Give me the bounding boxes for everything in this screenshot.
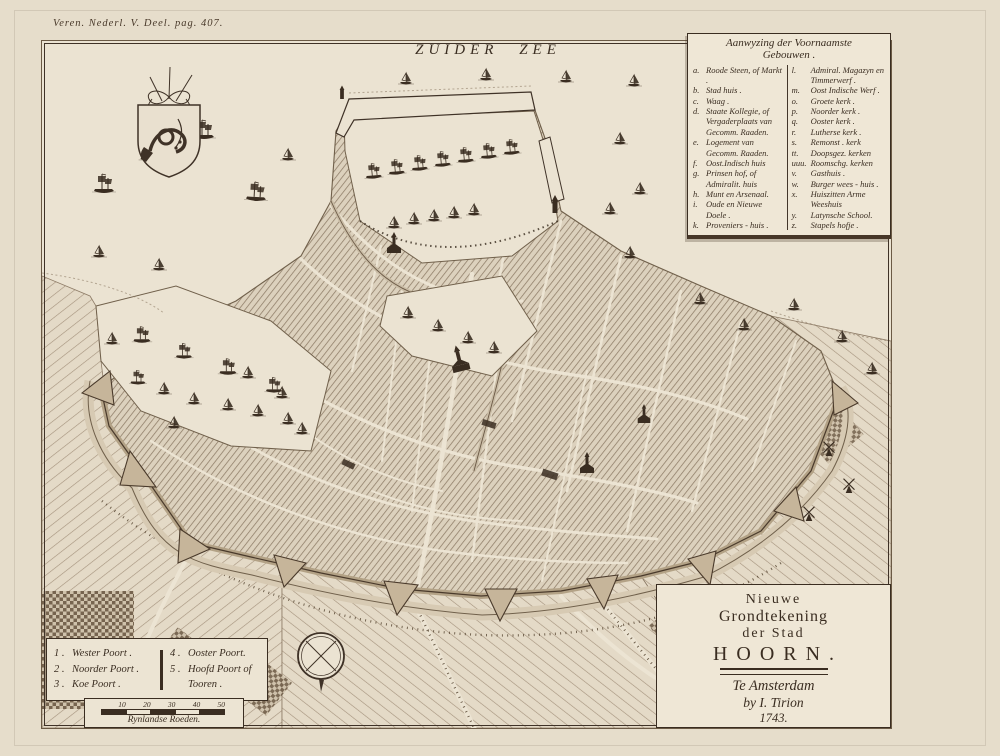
engraved-map-page: Veren. Nederl. V. Deel. pag. 407.: [0, 0, 1000, 756]
gate-entry: 4 .Ooster Poort.: [170, 646, 263, 662]
imprint-year: 1743.: [657, 711, 890, 726]
gate-entry: 2 .Noorder Poort .: [54, 662, 156, 678]
legend-entry: h.Munt en Arsenaal.: [693, 189, 783, 199]
legend-entry: q.Ooster kerk .: [792, 116, 886, 126]
legend-left-column: a.Roode Steen, of Markt . b.Stad huis . …: [688, 65, 787, 231]
scale-bar: 10 20 30 40 50 Rynlandse Roeden.: [84, 698, 244, 728]
legend-right-column: l.Admiral. Magazyn en Timmerwerf . m.Oos…: [787, 65, 890, 231]
legend-entry: c.Waag .: [693, 96, 783, 106]
legend-entry: g.Prinsen hof, of Admiralit. huis: [693, 168, 783, 189]
legend-entry: r.Lutherse kerk .: [792, 127, 886, 137]
gates-legend: 1 .Wester Poort . 2 .Noorder Poort . 3 .…: [46, 638, 268, 701]
gates-right-column: 4 .Ooster Poort. 5 .Hoofd Poort of Toore…: [163, 644, 267, 695]
legend-entry: p.Noorder kerk .: [792, 106, 886, 116]
legend-entry: i.Oude en Nieuwe Doele .: [693, 199, 783, 220]
scale-rule: [101, 709, 225, 715]
legend-entry: s.Remonst . kerk: [792, 137, 886, 147]
gate-entry: 3 .Koe Poort .: [54, 677, 156, 693]
legend-entry: y.Latynsche School.: [792, 210, 886, 220]
legend-entry: b.Stad huis .: [693, 85, 783, 95]
legend-entry: k.Proveniers - huis .: [693, 220, 783, 230]
sea-label: ZUIDER ZEE: [382, 42, 594, 59]
legend-entry: w.Burger wees - huis .: [792, 179, 886, 189]
legend-entry: x.Huiszitten Arme Weeshuis: [792, 189, 886, 210]
legend-entry: d.Staate Kollegie, of Vergaderplaats van…: [693, 106, 783, 137]
imprint-place: Te Amsterdam: [657, 678, 890, 695]
legend-entry: m.Oost Indische Werf .: [792, 85, 886, 95]
legend-entry: z.Stapels hofje .: [792, 220, 886, 230]
legend-entry: v.Gasthuis .: [792, 168, 886, 178]
scale-label: Rynlandse Roeden.: [85, 716, 243, 726]
title-line2: Grondtekening: [657, 608, 890, 626]
page-reference: Veren. Nederl. V. Deel. pag. 407.: [53, 18, 353, 29]
legend-entry: o.Groete kerk .: [792, 96, 886, 106]
legend-entry: tt.Doopsgez. kerken: [792, 148, 886, 158]
title-line3: der Stad: [657, 626, 890, 642]
title-cartouche: Nieuwe Grondtekening der Stad HOORN. Te …: [656, 584, 891, 728]
city-name: HOORN.: [657, 643, 890, 666]
legend-entry: a.Roode Steen, of Markt .: [693, 65, 783, 86]
gates-left-column: 1 .Wester Poort . 2 .Noorder Poort . 3 .…: [47, 644, 160, 695]
legend-title-line2: Gebouwen .: [688, 49, 890, 61]
scale-ticks: 10 20 30 40 50: [101, 700, 225, 709]
imprint-publisher: by I. Tirion: [657, 695, 890, 711]
legend-entry: f.Oost.Indisch huis: [693, 158, 783, 168]
legend-entry: uuu.Roomschg. kerken: [792, 158, 886, 168]
cartouche-rule: [720, 668, 828, 675]
buildings-legend: Aanwyzing der Voornaamste Gebouwen . a.R…: [687, 33, 891, 239]
legend-title-line1: Aanwyzing der Voornaamste: [688, 37, 890, 49]
gate-entry: 5 .Hoofd Poort of Tooren .: [170, 662, 263, 694]
legend-entry: e.Logement van Gecomm. Raaden.: [693, 137, 783, 158]
gate-entry: 1 .Wester Poort .: [54, 646, 156, 662]
legend-entry: l.Admiral. Magazyn en Timmerwerf .: [792, 65, 886, 86]
title-line1: Nieuwe: [657, 592, 890, 608]
